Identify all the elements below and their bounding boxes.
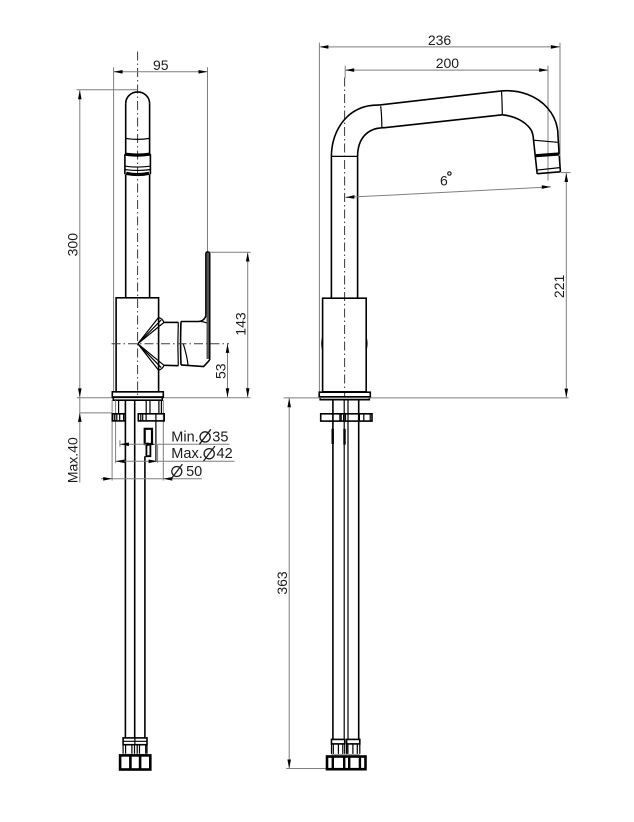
svg-text:6: 6 [440, 172, 448, 188]
svg-text:200: 200 [436, 55, 460, 71]
svg-text:221: 221 [551, 275, 567, 299]
svg-text:300: 300 [65, 233, 81, 257]
svg-text:363: 363 [274, 571, 290, 595]
svg-text:42: 42 [217, 446, 233, 462]
svg-text:53: 53 [213, 363, 229, 379]
svg-text:236: 236 [428, 32, 452, 48]
svg-text:50: 50 [186, 464, 202, 480]
svg-text:95: 95 [153, 57, 169, 73]
svg-text:Min.: Min. [171, 429, 198, 445]
svg-text:143: 143 [232, 312, 248, 336]
svg-text:Max.: Max. [171, 446, 202, 462]
svg-text:35: 35 [212, 429, 228, 445]
svg-text:Max.40: Max.40 [65, 437, 81, 483]
